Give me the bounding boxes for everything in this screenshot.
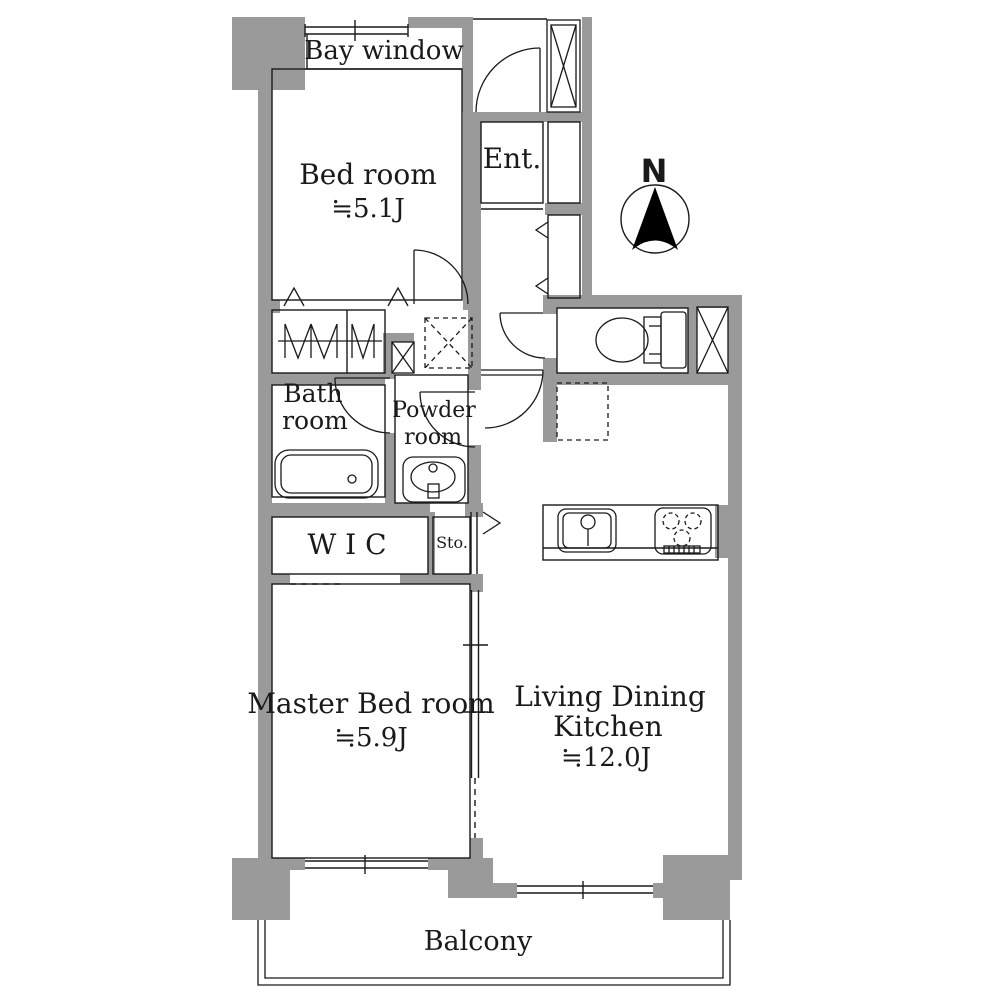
balcony-label: Balcony	[424, 926, 533, 957]
wall-toilet-top	[543, 295, 742, 308]
wall-master-bottom-right	[428, 858, 448, 870]
toilet-icon	[596, 312, 686, 368]
wall-left	[258, 88, 272, 858]
bedroom-label: Bed room	[299, 158, 437, 191]
north-label: N	[641, 152, 668, 190]
ldk-label-line2: Kitchen	[553, 710, 662, 743]
wall-between-cabinets	[545, 203, 582, 215]
bathtub-icon	[275, 450, 378, 498]
pillar-bottom-mid	[448, 858, 493, 898]
wall-ldk-bottom-left	[493, 883, 517, 898]
wic-label: W I C	[307, 528, 386, 561]
storage-fold-door-mark	[483, 512, 500, 534]
wall-corridor-left-mid	[468, 310, 481, 390]
closet-fold-door-mark-right	[388, 288, 408, 306]
toilet-door	[500, 313, 545, 358]
wall-bath-powder-divider	[385, 433, 395, 503]
window-ldk-bottom	[517, 881, 653, 899]
ldk-door	[481, 370, 543, 428]
shoe-cabinet-upper	[548, 122, 580, 203]
kitchen-sink-icon	[558, 509, 616, 552]
entrance-label: Ent.	[483, 142, 542, 175]
wall-wic-top	[258, 503, 430, 517]
floor-plan-drawing: N Bay window Bed room ≒5.1J Ent. Bath ro…	[0, 0, 1000, 1000]
hanger-rod-icon	[278, 324, 382, 358]
ldk-size: ≒12.0J	[561, 743, 651, 773]
wall-toilet-left-stub	[543, 308, 557, 314]
ldk-label-line1: Living Dining	[514, 680, 706, 713]
wall-toilet-left	[543, 358, 557, 442]
closet-fold-door-mark-left	[284, 288, 304, 306]
bathroom-label-line2: room	[282, 406, 348, 435]
wall-right-upper	[582, 17, 592, 308]
wall-corridor-left-lower	[468, 445, 481, 505]
front-door	[476, 48, 540, 112]
wall-wic-top-right	[465, 503, 483, 517]
wall-toilet-ps-divider	[688, 308, 697, 373]
shaft-x-box-icon	[547, 20, 580, 112]
pillar-bottom-left	[232, 858, 290, 920]
north-arrow-icon: N	[621, 152, 689, 253]
cabinet-fold-door-mark-upper	[536, 222, 548, 238]
vanity-sink-icon	[403, 457, 465, 502]
wall-kitchen-right-stub	[715, 505, 728, 558]
wall-bedroom-bottom-stub	[258, 300, 280, 313]
wall-wic-sto-divider	[428, 512, 435, 574]
small-pipe-space-x-box-icon	[392, 342, 414, 373]
bay-window-label: Bay window	[304, 36, 463, 66]
wall-master-top-right	[400, 574, 483, 584]
master-bedroom-size: ≒5.9J	[334, 723, 408, 753]
pillar-top-left	[232, 17, 305, 90]
powder-room-label-line2: room	[404, 425, 462, 450]
pillar-bottom-right	[663, 855, 730, 920]
master-bedroom-outline	[272, 584, 470, 858]
wall-master-top-left	[258, 574, 290, 584]
wall-toilet-bottom	[543, 373, 742, 385]
floor-plan-page: N Bay window Bed room ≒5.1J Ent. Bath ro…	[0, 0, 1000, 1000]
shoe-cabinet-lower	[548, 215, 580, 298]
pipe-space-x-box-icon	[697, 307, 728, 373]
wall-under-shaft	[545, 112, 582, 122]
bedroom-size: ≒5.1J	[331, 194, 405, 224]
bedroom-door	[414, 250, 468, 304]
wall-master-bottom-left	[290, 858, 305, 870]
washing-machine-space-icon	[425, 318, 472, 368]
master-bedroom-label: Master Bed room	[247, 687, 494, 720]
stove-burners-icon	[655, 508, 711, 554]
refrigerator-space-icon	[557, 383, 608, 440]
cabinet-fold-door-mark-lower	[536, 278, 548, 294]
wall-master-right-stub-bottom	[470, 838, 483, 860]
storage-label: Sto.	[436, 533, 468, 552]
wall-corridor-left-upper	[463, 112, 481, 310]
bathroom-label-line1: Bath	[283, 379, 342, 408]
powder-room-label-line1: Powder	[392, 398, 476, 423]
